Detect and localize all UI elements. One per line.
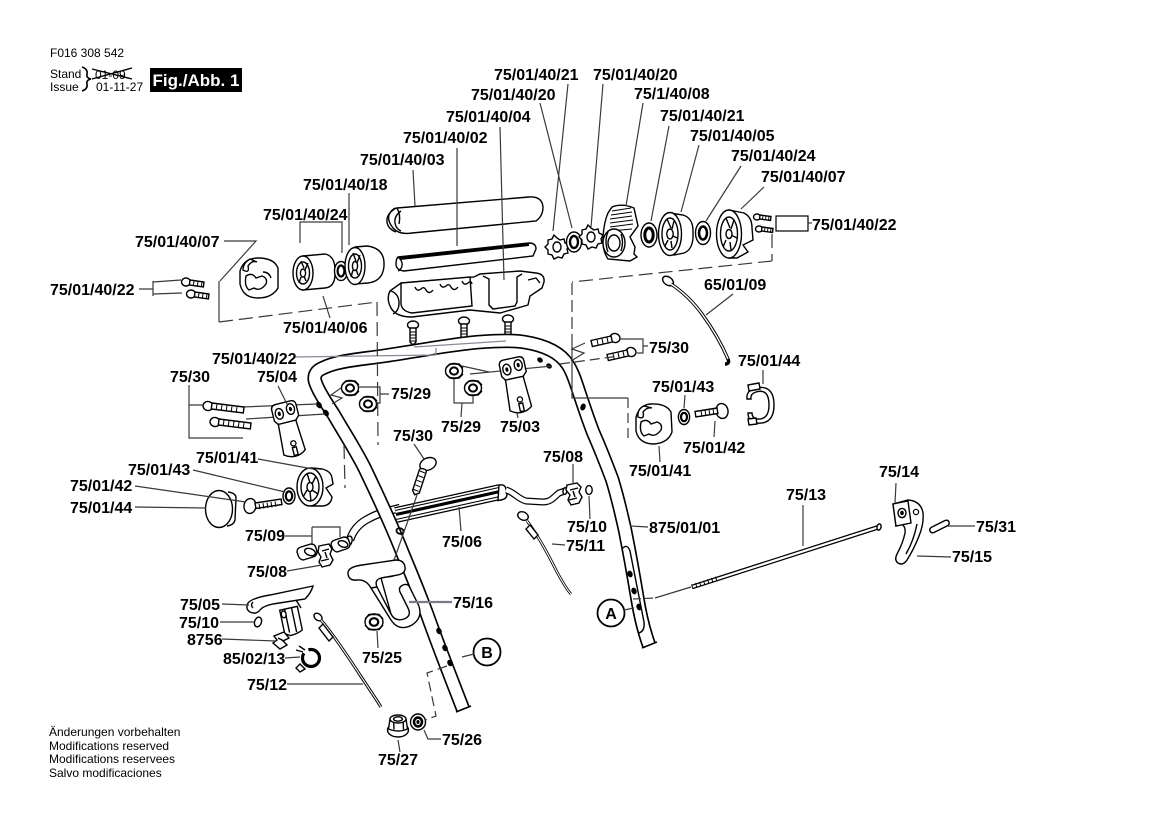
svg-text:Änderungen vorbehalten: Änderungen vorbehalten: [49, 725, 180, 739]
svg-text:75/08: 75/08: [247, 564, 287, 581]
svg-text:75/01/40/03: 75/01/40/03: [360, 152, 445, 169]
svg-text:75/01/40/22: 75/01/40/22: [212, 351, 297, 368]
svg-text:75/05: 75/05: [180, 597, 220, 614]
svg-text:75/30: 75/30: [170, 369, 210, 386]
svg-text:75/09: 75/09: [245, 528, 285, 545]
svg-text:75/1/40/08: 75/1/40/08: [634, 86, 710, 103]
svg-text:75/01/43: 75/01/43: [128, 462, 190, 479]
svg-text:Modifications reserved: Modifications reserved: [49, 739, 169, 753]
svg-text:85/02/13: 85/02/13: [223, 651, 285, 668]
svg-text:75/01/40/07: 75/01/40/07: [761, 169, 846, 186]
svg-text:75/15: 75/15: [952, 549, 992, 566]
svg-text:75/08: 75/08: [543, 449, 583, 466]
svg-text:75/01/40/22: 75/01/40/22: [812, 217, 897, 234]
svg-text:75/01/40/05: 75/01/40/05: [690, 128, 775, 145]
svg-text:Stand: Stand: [50, 67, 81, 81]
svg-text:75/01/40/07: 75/01/40/07: [135, 234, 220, 251]
svg-text:75/10: 75/10: [567, 519, 607, 536]
svg-text:8756: 8756: [187, 632, 223, 649]
svg-text:65/01/09: 65/01/09: [704, 277, 766, 294]
svg-text:875/01/01: 875/01/01: [649, 520, 720, 537]
svg-text:Issue: Issue: [50, 80, 79, 94]
svg-text:75/01/40/04: 75/01/40/04: [446, 109, 531, 126]
svg-text:Fig./Abb. 1: Fig./Abb. 1: [153, 71, 240, 90]
svg-text:01-11-27: 01-11-27: [96, 80, 143, 94]
svg-text:75/01/40/21: 75/01/40/21: [494, 67, 579, 84]
svg-text:75/01/41: 75/01/41: [629, 463, 691, 480]
svg-text:75/01/40/24: 75/01/40/24: [263, 207, 348, 224]
svg-text:75/03: 75/03: [500, 419, 540, 436]
svg-text:Modifications reservees: Modifications reservees: [49, 752, 175, 766]
svg-text:75/01/41: 75/01/41: [196, 450, 258, 467]
svg-text:75/30: 75/30: [649, 340, 689, 357]
svg-text:75/06: 75/06: [442, 534, 482, 551]
svg-text:75/29: 75/29: [441, 419, 481, 436]
svg-text:75/01/40/21: 75/01/40/21: [660, 108, 745, 125]
svg-text:75/01/40/20: 75/01/40/20: [471, 87, 556, 104]
svg-text:75/01/43: 75/01/43: [652, 379, 714, 396]
svg-text:F016 308 542: F016 308 542: [50, 46, 124, 60]
svg-text:75/01/40/06: 75/01/40/06: [283, 320, 368, 337]
svg-text:B: B: [481, 645, 493, 662]
svg-text:75/01/40/24: 75/01/40/24: [731, 148, 816, 165]
svg-text:75/12: 75/12: [247, 677, 287, 694]
svg-text:75/01/44: 75/01/44: [70, 500, 132, 517]
svg-text:75/01/40/02: 75/01/40/02: [403, 130, 488, 147]
svg-text:75/27: 75/27: [378, 752, 418, 769]
svg-text:75/14: 75/14: [879, 464, 919, 481]
svg-text:75/01/42: 75/01/42: [683, 440, 745, 457]
svg-text:A: A: [605, 606, 617, 623]
svg-text:75/26: 75/26: [442, 732, 482, 749]
svg-text:75/04: 75/04: [257, 369, 297, 386]
svg-text:75/01/40/18: 75/01/40/18: [303, 177, 388, 194]
svg-text:75/16: 75/16: [453, 595, 493, 612]
svg-text:75/11: 75/11: [566, 538, 605, 555]
svg-text:75/01/42: 75/01/42: [70, 478, 132, 495]
svg-text:75/13: 75/13: [786, 487, 826, 504]
svg-text:75/01/40/22: 75/01/40/22: [50, 282, 135, 299]
svg-text:75/01/40/20: 75/01/40/20: [593, 67, 678, 84]
svg-text:75/31: 75/31: [976, 519, 1016, 536]
svg-text:Salvo modificaciones: Salvo modificaciones: [49, 766, 162, 780]
svg-text:75/30: 75/30: [393, 428, 433, 445]
svg-text:75/25: 75/25: [362, 650, 402, 667]
svg-text:75/01/44: 75/01/44: [738, 353, 800, 370]
svg-text:75/29: 75/29: [391, 386, 431, 403]
svg-text:75/10: 75/10: [179, 615, 219, 632]
